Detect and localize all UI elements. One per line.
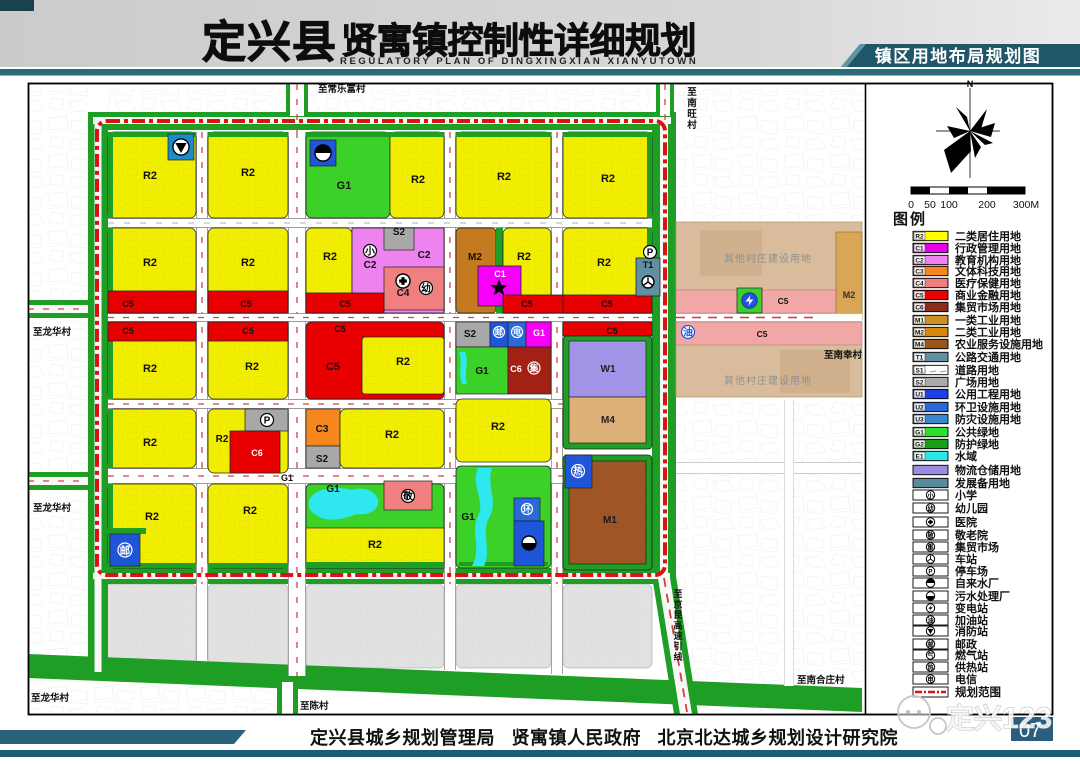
svg-text:定兴县: 定兴县 [202,18,337,67]
svg-text:广场用地: 广场用地 [955,375,999,389]
svg-text:C5: C5 [334,324,346,334]
svg-text:集: 集 [926,542,934,551]
svg-text:防护绿地: 防护绿地 [955,437,999,451]
svg-text:R2: R2 [368,539,382,551]
svg-text:热: 热 [927,662,934,671]
svg-text:R2: R2 [915,233,924,240]
svg-text:50: 50 [924,199,936,211]
svg-text:环卫设施用地: 环卫设施用地 [955,400,1021,414]
svg-text:二类居住用地: 二类居住用地 [955,229,1021,243]
svg-text:REGULATORY PLAN OF DINGXINGXIA: REGULATORY PLAN OF DINGXINGXIAN XIANYUTO… [340,56,698,67]
svg-text:T1: T1 [643,260,654,270]
svg-text:R2: R2 [143,170,157,182]
svg-text:线: 线 [673,651,682,662]
svg-text:至龙华村: 至龙华村 [31,692,70,704]
svg-text:消防站: 消防站 [955,624,988,638]
svg-text:环: 环 [523,505,531,514]
svg-text:至常乐富村: 至常乐富村 [318,83,366,95]
svg-text:油: 油 [683,326,693,339]
svg-text:至龙华村: 至龙华村 [33,502,72,514]
svg-text:物流仓储用地: 物流仓储用地 [955,463,1021,477]
svg-text:南: 南 [687,97,697,109]
svg-text:R2: R2 [143,437,157,449]
svg-text:R2: R2 [411,174,425,186]
svg-text:京: 京 [673,599,682,610]
svg-text:小: 小 [926,490,934,499]
svg-text:邮政: 邮政 [955,637,978,651]
svg-text:C2: C2 [915,257,924,264]
svg-text:M1: M1 [915,317,924,324]
svg-text:敬: 敬 [402,490,413,503]
svg-text:文体科技用地: 文体科技用地 [955,264,1021,278]
svg-text:C5: C5 [521,299,533,309]
svg-text:R2: R2 [245,361,259,373]
svg-text:公共绿地: 公共绿地 [955,425,999,439]
svg-text:旺: 旺 [687,109,697,120]
svg-text:电: 电 [927,674,934,683]
svg-text:水域: 水域 [955,449,977,463]
svg-text:R2: R2 [243,505,257,517]
svg-text:M4: M4 [601,415,615,426]
svg-text:G1: G1 [915,429,924,436]
svg-text:G1: G1 [475,366,489,377]
svg-text:行政管理用地: 行政管理用地 [954,241,1021,255]
svg-text:C5: C5 [240,299,252,309]
svg-text:医疗保健用地: 医疗保健用地 [955,276,1021,290]
svg-text:R2: R2 [241,257,255,269]
svg-text:C6: C6 [510,364,522,374]
svg-text:G1: G1 [326,484,340,495]
svg-text:E1: E1 [916,453,924,460]
svg-text:至: 至 [673,589,682,599]
svg-text:C5: C5 [242,326,254,336]
svg-text:污水处理厂: 污水处理厂 [955,589,1010,603]
svg-text:镇区用地布局规划图: 镇区用地布局规划图 [875,46,1042,66]
svg-text:贤寓镇控制性详细规划: 贤寓镇控制性详细规划 [341,20,696,61]
svg-text:邮: 邮 [495,327,504,337]
svg-text:邮: 邮 [927,639,934,648]
svg-text:昆: 昆 [673,610,682,620]
svg-text:C5: C5 [339,299,351,309]
svg-text:R2: R2 [396,356,410,368]
svg-text:至龙华村: 至龙华村 [33,326,72,338]
svg-text:定兴县城乡规划管理局 贤寓镇人民政府 北京北达城乡规: 定兴县城乡规划管理局 贤寓镇人民政府 北京北达城乡规划设计研究院 [310,727,898,748]
svg-text:P: P [647,248,654,259]
svg-text:速: 速 [673,630,682,641]
svg-text:C5: C5 [122,326,134,336]
svg-text:R2: R2 [323,251,337,263]
svg-text:R2: R2 [491,421,505,433]
svg-text:C1: C1 [915,245,924,252]
svg-text:邮: 邮 [120,544,131,557]
svg-text:M4: M4 [915,341,924,348]
svg-text:至南合庄村: 至南合庄村 [797,674,845,686]
svg-text:C2: C2 [418,250,431,261]
svg-text:图例: 图例 [893,210,927,228]
svg-text:U1: U1 [915,391,924,398]
svg-text:G1: G1 [281,473,293,483]
svg-text:R2: R2 [145,511,159,523]
svg-text:定兴123: 定兴123 [946,702,1052,735]
svg-text:C3: C3 [316,424,329,435]
svg-text:300M: 300M [1013,199,1039,211]
svg-text:至: 至 [687,87,697,98]
svg-text:至陈村: 至陈村 [300,700,329,712]
svg-text:电信: 电信 [955,672,977,686]
svg-text:G2: G2 [915,441,924,448]
svg-text:R2: R2 [241,167,255,179]
svg-text:M1: M1 [603,515,617,526]
svg-text:气: 气 [926,650,934,659]
svg-text:S2: S2 [393,227,406,238]
svg-text:集贸市场: 集贸市场 [954,540,999,554]
svg-text:200: 200 [978,199,996,211]
svg-text:集贸市场用地: 集贸市场用地 [954,300,1021,314]
svg-text:村: 村 [687,119,697,131]
svg-text:C4: C4 [397,288,410,299]
svg-text:P: P [264,416,271,427]
svg-text:一类工业用地: 一类工业用地 [955,313,1021,327]
svg-text:S2: S2 [464,329,477,340]
svg-text:R2: R2 [385,429,399,441]
svg-text:R2: R2 [216,434,229,445]
svg-text:电: 电 [513,327,522,337]
svg-text:公路交通用地: 公路交通用地 [955,350,1021,364]
svg-text:车站: 车站 [955,552,977,566]
svg-text:燃气站: 燃气站 [954,648,988,662]
svg-text:小学: 小学 [954,488,977,502]
svg-text:加油站: 加油站 [954,613,988,627]
svg-text:S1: S1 [916,367,924,374]
svg-text:小: 小 [364,245,375,258]
svg-text:M2: M2 [843,290,856,300]
svg-text:规划范围: 规划范围 [955,685,1001,699]
svg-text:油: 油 [927,615,933,624]
svg-text:C5: C5 [601,299,613,309]
svg-text:至南幸村: 至南幸村 [824,349,863,361]
svg-text:C5: C5 [915,292,924,299]
svg-text:道路用地: 道路用地 [955,363,999,377]
svg-text:教育机构用地: 教育机构用地 [954,253,1021,267]
svg-text:C5: C5 [778,296,789,306]
svg-text:公用工程用地: 公用工程用地 [955,387,1021,401]
svg-text:引: 引 [673,641,682,652]
svg-text:自来水厂: 自来水厂 [955,576,999,590]
svg-text:C1: C1 [494,269,506,279]
svg-text:敬: 敬 [926,530,934,539]
svg-text:幼儿园: 幼儿园 [955,501,988,515]
svg-text:二类工业用地: 二类工业用地 [955,325,1021,339]
svg-text:R2: R2 [143,257,157,269]
svg-text:T1: T1 [916,354,924,361]
svg-text:敬老院: 敬老院 [954,528,988,542]
svg-text:商业金融用地: 商业金融用地 [955,288,1021,302]
svg-text:R2: R2 [601,173,615,185]
svg-text:C6: C6 [251,448,263,458]
svg-text:U2: U2 [915,404,924,411]
svg-text:C4: C4 [915,280,924,287]
svg-text:W1: W1 [601,364,616,375]
svg-text:S2: S2 [916,379,924,386]
svg-text:变电站: 变电站 [955,601,988,615]
svg-text:S2: S2 [316,454,329,465]
svg-text:C5: C5 [757,329,768,339]
svg-text:幼: 幼 [927,503,933,512]
svg-text:C5: C5 [606,326,618,336]
svg-text:集: 集 [528,362,539,373]
svg-text:M2: M2 [468,252,482,263]
svg-text:R2: R2 [497,171,511,183]
svg-text:发展备用地: 发展备用地 [954,476,1010,490]
svg-text:高: 高 [673,620,682,631]
svg-text:U3: U3 [915,416,924,423]
svg-text:P: P [928,568,932,575]
svg-text:M2: M2 [915,329,924,336]
svg-text:农业服务设施用地: 农业服务设施用地 [954,337,1043,351]
svg-text:热: 热 [573,465,583,478]
svg-text:100: 100 [940,199,958,211]
svg-text:停车场: 停车场 [955,564,988,578]
svg-text:G1: G1 [337,180,352,192]
svg-text:医院: 医院 [955,515,977,529]
svg-text:其他村庄建设用地: 其他村庄建设用地 [724,374,812,387]
svg-text:R2: R2 [597,257,611,269]
svg-text:R2: R2 [143,363,157,375]
svg-text:C2: C2 [364,260,377,271]
svg-text:供热站: 供热站 [954,660,988,674]
svg-text:幼: 幼 [421,282,431,295]
svg-text:C3: C3 [915,268,924,275]
svg-text:R2: R2 [517,251,531,263]
svg-text:G1: G1 [533,328,545,338]
svg-text:0: 0 [908,199,914,211]
svg-text:C5: C5 [326,361,340,373]
svg-text:G1: G1 [461,512,475,523]
svg-text:C5: C5 [122,299,134,309]
svg-text:C6: C6 [915,304,924,311]
svg-text:其他村庄建设用地: 其他村庄建设用地 [724,252,812,265]
svg-text:防灾设施用地: 防灾设施用地 [955,412,1021,426]
